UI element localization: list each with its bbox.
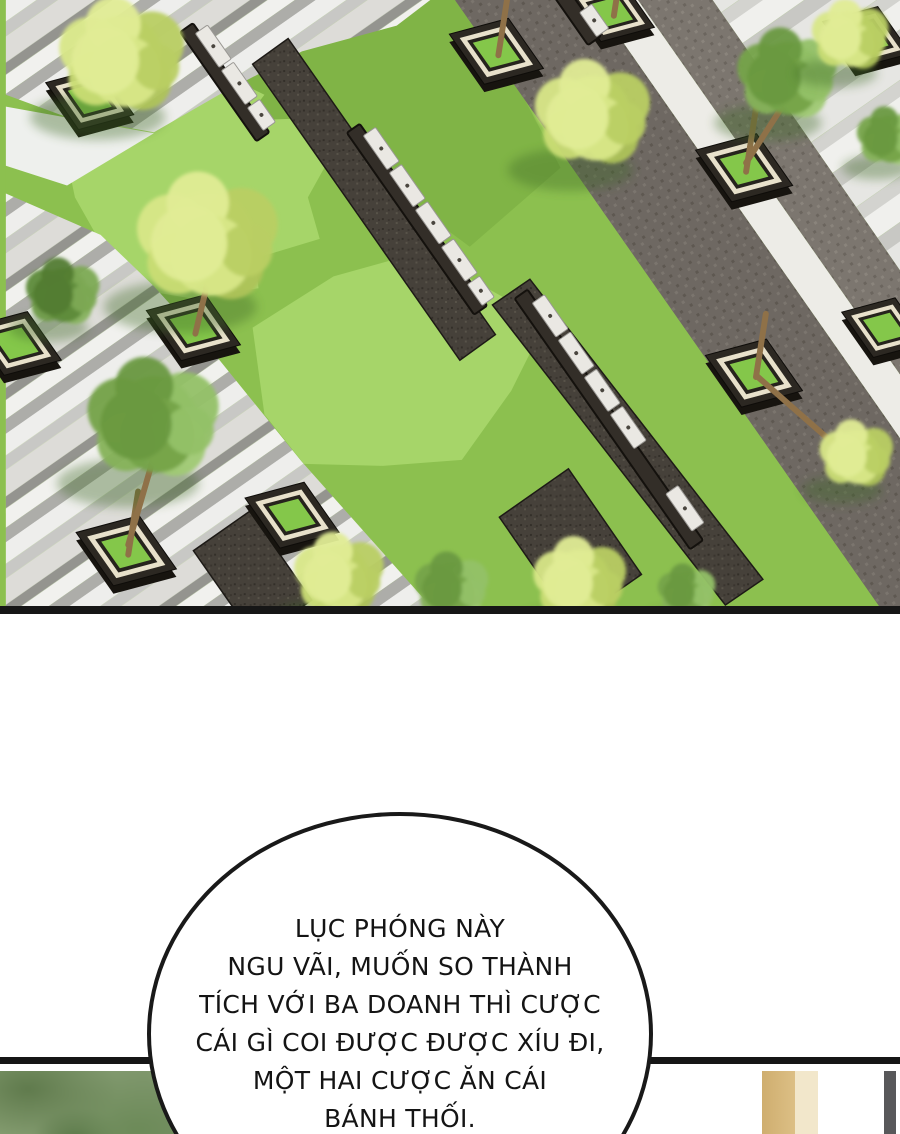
speech-line: MỘT HAI CƯỢC ĂN CÁI: [151, 1062, 649, 1100]
panel-park-aerial: [0, 0, 900, 614]
comic-page: LỤC PHÓNG NÀY NGU VÃI, MUỐN SO THÀNH TÍC…: [0, 0, 900, 1134]
speech-line: CÁI GÌ COI ĐƯỢC ĐƯỢC XÍU ĐI,: [151, 1024, 649, 1062]
door-frame-strip: [762, 1071, 795, 1134]
speech-bubble-text: LỤC PHÓNG NÀY NGU VÃI, MUỐN SO THÀNH TÍC…: [151, 816, 649, 1134]
park-render-svg: [0, 0, 900, 606]
speech-line: BÁNH THỐI.: [151, 1100, 649, 1134]
speech-bubble: LỤC PHÓNG NÀY NGU VÃI, MUỐN SO THÀNH TÍC…: [147, 812, 653, 1134]
speech-line: TÍCH VỚI BA DOANH THÌ CƯỢC: [151, 986, 649, 1024]
wall-shadow-strip: [884, 1071, 896, 1134]
wall-trim-strip: [795, 1071, 818, 1134]
speech-line: LỤC PHÓNG NÀY: [151, 910, 649, 948]
speech-line: NGU VÃI, MUỐN SO THÀNH: [151, 948, 649, 986]
